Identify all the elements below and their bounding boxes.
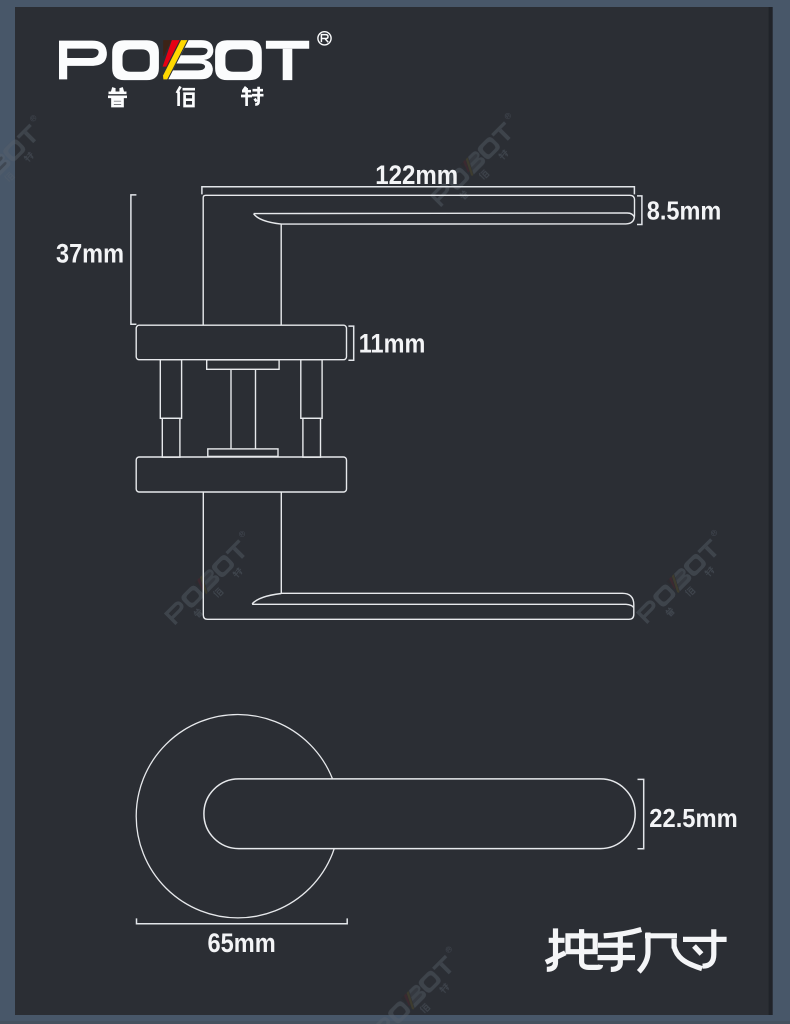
svg-text:65mm: 65mm — [208, 928, 276, 958]
svg-text:22.5mm: 22.5mm — [649, 803, 737, 833]
svg-text:122mm: 122mm — [375, 160, 458, 190]
svg-text:8.5mm: 8.5mm — [647, 196, 722, 226]
svg-text:11mm: 11mm — [359, 329, 426, 359]
svg-text:37mm: 37mm — [56, 238, 124, 268]
